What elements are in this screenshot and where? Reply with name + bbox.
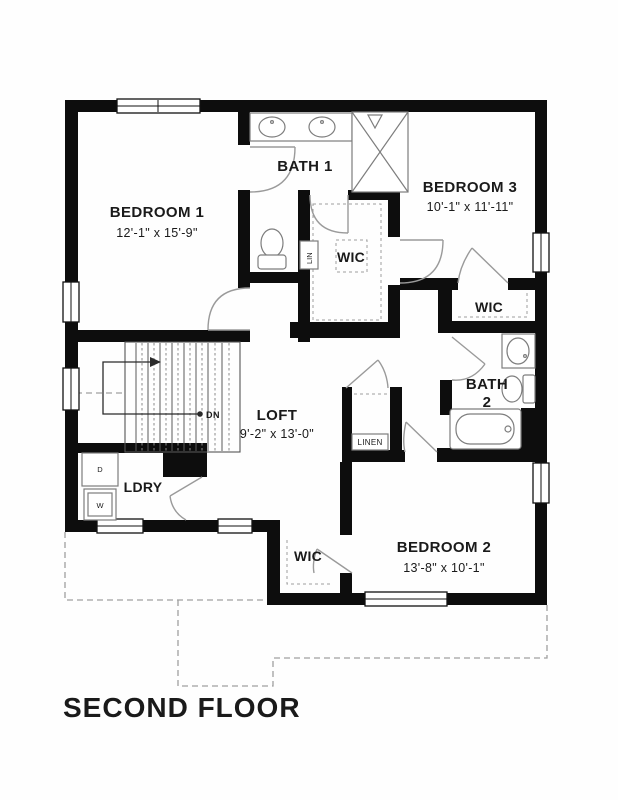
shower-fixture xyxy=(352,112,408,192)
window xyxy=(63,368,79,410)
linen-label: LINEN xyxy=(357,438,382,447)
wall xyxy=(535,112,547,233)
wall xyxy=(437,448,547,462)
room-label-wic-master: WIC xyxy=(337,249,365,265)
wall xyxy=(535,503,547,598)
linen-closet-hall: LINEN xyxy=(352,434,388,450)
room-label-loft: LOFT xyxy=(257,407,298,424)
door-swing xyxy=(310,195,348,233)
dashed-outline xyxy=(65,532,267,600)
dryer-label: D xyxy=(97,465,103,474)
wall xyxy=(267,532,280,605)
laundry-appliances: D W xyxy=(82,453,118,520)
dryer-fixture: D xyxy=(82,453,118,486)
stair-treads xyxy=(136,343,229,451)
door-swing xyxy=(346,360,388,388)
wall xyxy=(280,593,365,605)
wall xyxy=(340,462,352,535)
window xyxy=(365,592,447,606)
wall xyxy=(535,272,547,463)
room-label-laundry: LDRY xyxy=(124,479,163,495)
door-swing xyxy=(400,240,443,283)
room-label-bath2-line1: BATH xyxy=(466,376,508,393)
wall xyxy=(78,520,97,532)
window xyxy=(97,519,143,533)
room-label-bedroom1: BEDROOM 1 xyxy=(110,204,204,221)
wall xyxy=(447,593,547,605)
door-swing xyxy=(452,337,485,380)
bathtub-fixture xyxy=(450,409,521,449)
room-label-bath2-line2: 2 xyxy=(483,394,492,411)
wall xyxy=(342,450,405,462)
room-dims-bedroom3: 10'-1" x 11'-11" xyxy=(427,200,514,214)
linen-closet-bath1: LIN xyxy=(300,241,318,269)
room-label-wic-bedroom2: WIC xyxy=(294,548,322,564)
wall xyxy=(400,278,458,290)
wall xyxy=(163,443,207,477)
washer-label: W xyxy=(96,501,104,510)
vanity-sink-fixture xyxy=(250,113,352,141)
page-title: SECOND FLOOR xyxy=(63,692,301,723)
sink-fixture xyxy=(502,334,535,368)
window xyxy=(533,463,549,503)
wall xyxy=(143,520,218,532)
door-swing xyxy=(170,477,202,520)
wall xyxy=(508,278,535,290)
room-label-bedroom3: BEDROOM 3 xyxy=(423,179,517,196)
room-dims-bedroom2: 13'-8" x 10'-1" xyxy=(403,561,484,575)
wall xyxy=(388,285,400,338)
staircase: DN xyxy=(103,342,240,452)
wall xyxy=(245,272,300,283)
room-labels: BEDROOM 1 12'-1" x 15'-9" BATH 1 BEDROOM… xyxy=(110,158,517,575)
wall xyxy=(65,410,78,532)
dashed-outline xyxy=(178,600,547,686)
wall xyxy=(390,387,402,450)
washer-fixture: W xyxy=(84,489,116,520)
door-swing xyxy=(458,248,508,283)
window xyxy=(63,282,79,322)
stair-dn-label: DN xyxy=(206,410,220,420)
room-dims-bedroom1: 12'-1" x 15'-9" xyxy=(116,226,197,240)
room-label-bath1: BATH 1 xyxy=(277,158,332,175)
wall xyxy=(342,387,352,450)
wall xyxy=(521,408,535,450)
window xyxy=(117,99,200,113)
door-swing xyxy=(404,422,437,452)
room-label-bedroom2: BEDROOM 2 xyxy=(397,539,491,556)
window xyxy=(218,519,252,533)
wall xyxy=(440,321,535,333)
lin-label: LIN xyxy=(305,252,314,264)
floor-plan: DN xyxy=(0,0,618,800)
stair-direction-arrow xyxy=(103,357,203,417)
door-swing xyxy=(208,288,250,330)
window xyxy=(533,233,549,272)
bath1-fixtures xyxy=(250,112,408,269)
wall xyxy=(65,112,78,282)
room-label-wic-bedroom3: WIC xyxy=(475,299,503,315)
wall xyxy=(340,573,352,595)
toilet-fixture xyxy=(258,229,286,269)
wall xyxy=(65,322,78,368)
wall xyxy=(290,322,400,338)
room-dims-loft: 9'-2" x 13'-0" xyxy=(240,427,314,441)
wall xyxy=(65,330,250,342)
floor-plan-drawing: DN xyxy=(0,0,618,800)
wall xyxy=(238,112,250,145)
wall xyxy=(252,520,280,532)
